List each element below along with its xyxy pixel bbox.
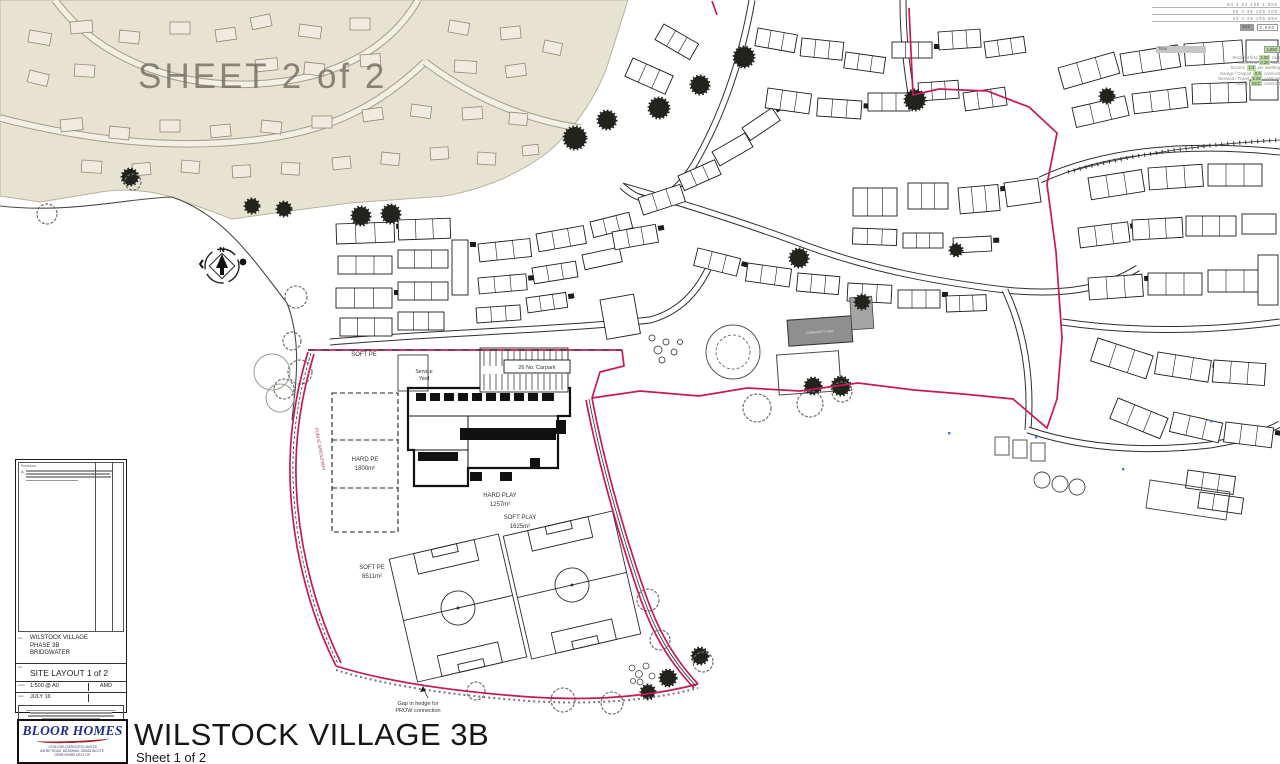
hard-play-label-2: 1257m² <box>490 502 510 508</box>
building <box>338 256 392 274</box>
building <box>1155 352 1220 383</box>
building <box>1132 217 1183 240</box>
existing-building <box>454 60 477 74</box>
soft-pe-school-label: SOFT PE <box>351 352 377 358</box>
building <box>1212 360 1265 386</box>
building <box>340 318 392 336</box>
schedule-row: 84 4 22 105 1,500 <box>1152 1 1280 8</box>
building <box>1242 214 1276 234</box>
existing-building <box>215 27 236 42</box>
existing-building <box>462 107 483 120</box>
field-boundary <box>0 197 297 420</box>
building <box>1208 270 1262 292</box>
proposed-tree <box>743 394 771 422</box>
building <box>1148 273 1202 295</box>
building <box>476 305 521 323</box>
proposed-tree <box>601 692 623 714</box>
football-pitch <box>389 534 526 682</box>
date-value: JULY 16 <box>30 694 89 702</box>
building <box>398 218 451 240</box>
hard-play-label-1: HARD PLAY <box>483 493 517 499</box>
existing-tree <box>734 47 754 67</box>
community-hall: COMMUNITY HALL <box>773 296 878 395</box>
existing-tree <box>1100 89 1114 103</box>
building <box>1198 492 1244 514</box>
title-block: Revisions A site WILSTOCK VILLAGE PHASE … <box>15 459 127 713</box>
sheet-subtitle: Sheet 1 of 2 <box>136 750 206 764</box>
sheet-title: WILSTOCK VILLAGE 3B <box>134 717 489 753</box>
existing-building <box>109 126 130 140</box>
existing-building <box>350 18 370 30</box>
building <box>336 222 403 244</box>
revision-note-lines <box>26 469 121 483</box>
building <box>1078 221 1138 248</box>
existing-building <box>332 156 351 170</box>
drawing-title-row: title SITE LAYOUT 1 of 2 <box>16 664 126 682</box>
building <box>908 183 948 209</box>
sheet2-overlay-label: SHEET 2 of 2 <box>138 57 387 96</box>
schedule-total-row: tot 2,850 <box>1152 23 1280 31</box>
existing-tree <box>691 76 709 94</box>
project-line-2: PHASE 3B <box>30 643 123 651</box>
building <box>984 36 1026 57</box>
plan-drawing: COMMUNITY HALL <box>0 0 1280 764</box>
existing-tree <box>790 249 808 267</box>
building <box>1148 164 1203 190</box>
building <box>898 290 948 308</box>
existing-building <box>430 147 449 160</box>
existing-building <box>170 22 190 34</box>
proposed-tree <box>650 630 670 650</box>
existing-building <box>505 63 526 78</box>
hard-pe-label-1: HARD PE <box>352 457 379 463</box>
existing-building <box>261 120 282 134</box>
building <box>1088 170 1145 200</box>
building <box>946 295 987 312</box>
parking-schedule: Total 2,850 Resident first2.00cars Visit… <box>1156 46 1280 86</box>
north-compass: N <box>200 245 246 283</box>
building <box>582 247 622 270</box>
building <box>853 188 897 216</box>
existing-building <box>410 104 431 119</box>
existing-tree <box>382 205 400 223</box>
building <box>1186 216 1236 236</box>
soft-play-label-2: 1625m² <box>510 524 530 530</box>
proposed-tree <box>285 286 307 308</box>
proposed-tree <box>37 204 57 224</box>
building <box>478 239 532 262</box>
existing-building <box>298 24 321 39</box>
parking-schedule-header: Total 2,850 <box>1156 46 1280 53</box>
date-row: date JULY 16 <box>16 693 126 703</box>
play-area <box>649 325 760 379</box>
accommodation-schedule: 84 4 22 105 1,500 56 4 25 105 400 40 4 2… <box>1152 1 1280 31</box>
drawing-title: SITE LAYOUT 1 of 2 <box>30 668 108 678</box>
existing-building <box>60 118 83 132</box>
existing-tree <box>564 127 586 149</box>
existing-tree <box>245 199 259 213</box>
revision-marker: A <box>21 469 24 483</box>
proposed-tree <box>551 688 575 712</box>
building <box>800 38 844 60</box>
existing-tree <box>660 670 676 686</box>
hard-pe-label-2: 1800m² <box>355 466 375 472</box>
building <box>892 42 940 58</box>
building <box>1088 274 1151 300</box>
building <box>625 58 673 94</box>
building <box>398 250 448 268</box>
building <box>958 184 1008 214</box>
building <box>1185 470 1235 495</box>
building <box>817 98 870 120</box>
north-label: N <box>219 245 224 254</box>
existing-building <box>210 124 231 138</box>
existing-building <box>70 20 93 34</box>
existing-tree <box>122 169 138 185</box>
existing-building <box>119 30 140 44</box>
road-casing <box>622 0 752 200</box>
building <box>532 261 578 284</box>
existing-tree <box>855 295 869 309</box>
building <box>526 291 576 313</box>
schedule-row: 40 4 25 105 950 <box>1152 15 1280 22</box>
soft-pe-field-label-2: 8511m² <box>362 574 382 580</box>
building <box>938 29 981 50</box>
revision-table: Revisions A <box>18 462 124 632</box>
building <box>1258 255 1278 305</box>
schedule-row: 56 4 25 105 400 <box>1152 8 1280 15</box>
proposed-tree <box>283 332 301 350</box>
existing-building <box>81 160 102 173</box>
existing-building <box>74 64 95 77</box>
existing-tree <box>950 244 962 256</box>
bloor-homes-logo: BLOOR HOMES J S BLOOR (SERVICES) LIMITED… <box>17 719 128 764</box>
building <box>745 263 791 287</box>
building <box>1132 87 1188 113</box>
status-value: AMD <box>89 683 123 691</box>
existing-building <box>509 112 528 126</box>
service-yard-label-2: Yard <box>419 376 430 382</box>
site-plan-sheet: COMMUNITY HALL <box>0 0 1280 764</box>
existing-building <box>477 152 496 165</box>
project-name-row: site WILSTOCK VILLAGE PHASE 3B BRIDGWATE… <box>16 634 126 664</box>
scale-value: 1:500 @ A0 <box>30 683 89 691</box>
existing-building <box>181 160 200 174</box>
existing-building <box>232 165 251 178</box>
scale-row: scale 1:500 @ A0 AMD <box>16 682 126 693</box>
building <box>1110 398 1168 439</box>
logo-address-3: DERBYSHIRE DE12 7JP <box>19 753 126 757</box>
building <box>755 28 798 53</box>
building <box>600 294 640 339</box>
building <box>452 240 476 295</box>
building <box>796 273 839 295</box>
existing-building <box>522 144 539 156</box>
building <box>478 273 535 294</box>
existing-building <box>381 152 400 166</box>
building <box>844 52 886 73</box>
project-line-1: WILSTOCK VILLAGE <box>30 635 123 643</box>
building <box>536 226 586 252</box>
building <box>903 233 943 248</box>
existing-building <box>362 107 383 122</box>
boulder-cluster <box>629 663 655 685</box>
existing-tree <box>277 202 291 216</box>
existing-building <box>312 116 332 128</box>
building <box>1004 178 1041 206</box>
building <box>336 288 400 308</box>
carpark-label: 26 No. Carpark <box>518 365 556 371</box>
building <box>655 24 699 60</box>
existing-building <box>160 120 180 132</box>
building <box>398 282 448 300</box>
soft-play-label-1: SOFT PLAY <box>504 515 536 521</box>
gap-note-2: PROW connection <box>395 708 440 714</box>
bridleway-label: PUBLIC BRIDLEWAY <box>314 427 326 471</box>
building <box>712 133 753 166</box>
path-edge <box>589 399 696 686</box>
building <box>1058 52 1120 89</box>
building <box>1170 412 1223 443</box>
building <box>678 160 721 191</box>
service-yard-label-1: Service <box>415 369 432 375</box>
building <box>1091 338 1154 379</box>
gap-arrow <box>420 686 428 698</box>
building <box>398 312 444 330</box>
parking-row: SourceSCCcars/unit <box>1156 81 1280 86</box>
project-line-3: BRIDGWATER <box>30 650 123 658</box>
gap-note-1: Gap in hedge for <box>398 701 439 707</box>
existing-building <box>500 26 521 40</box>
soft-pe-field-label-1: SOFT PE <box>359 565 385 571</box>
building <box>852 228 897 246</box>
existing-tree <box>598 111 616 129</box>
existing-building <box>281 162 300 175</box>
building <box>1208 164 1262 186</box>
existing-tree <box>649 98 669 118</box>
existing-tree <box>352 207 370 225</box>
